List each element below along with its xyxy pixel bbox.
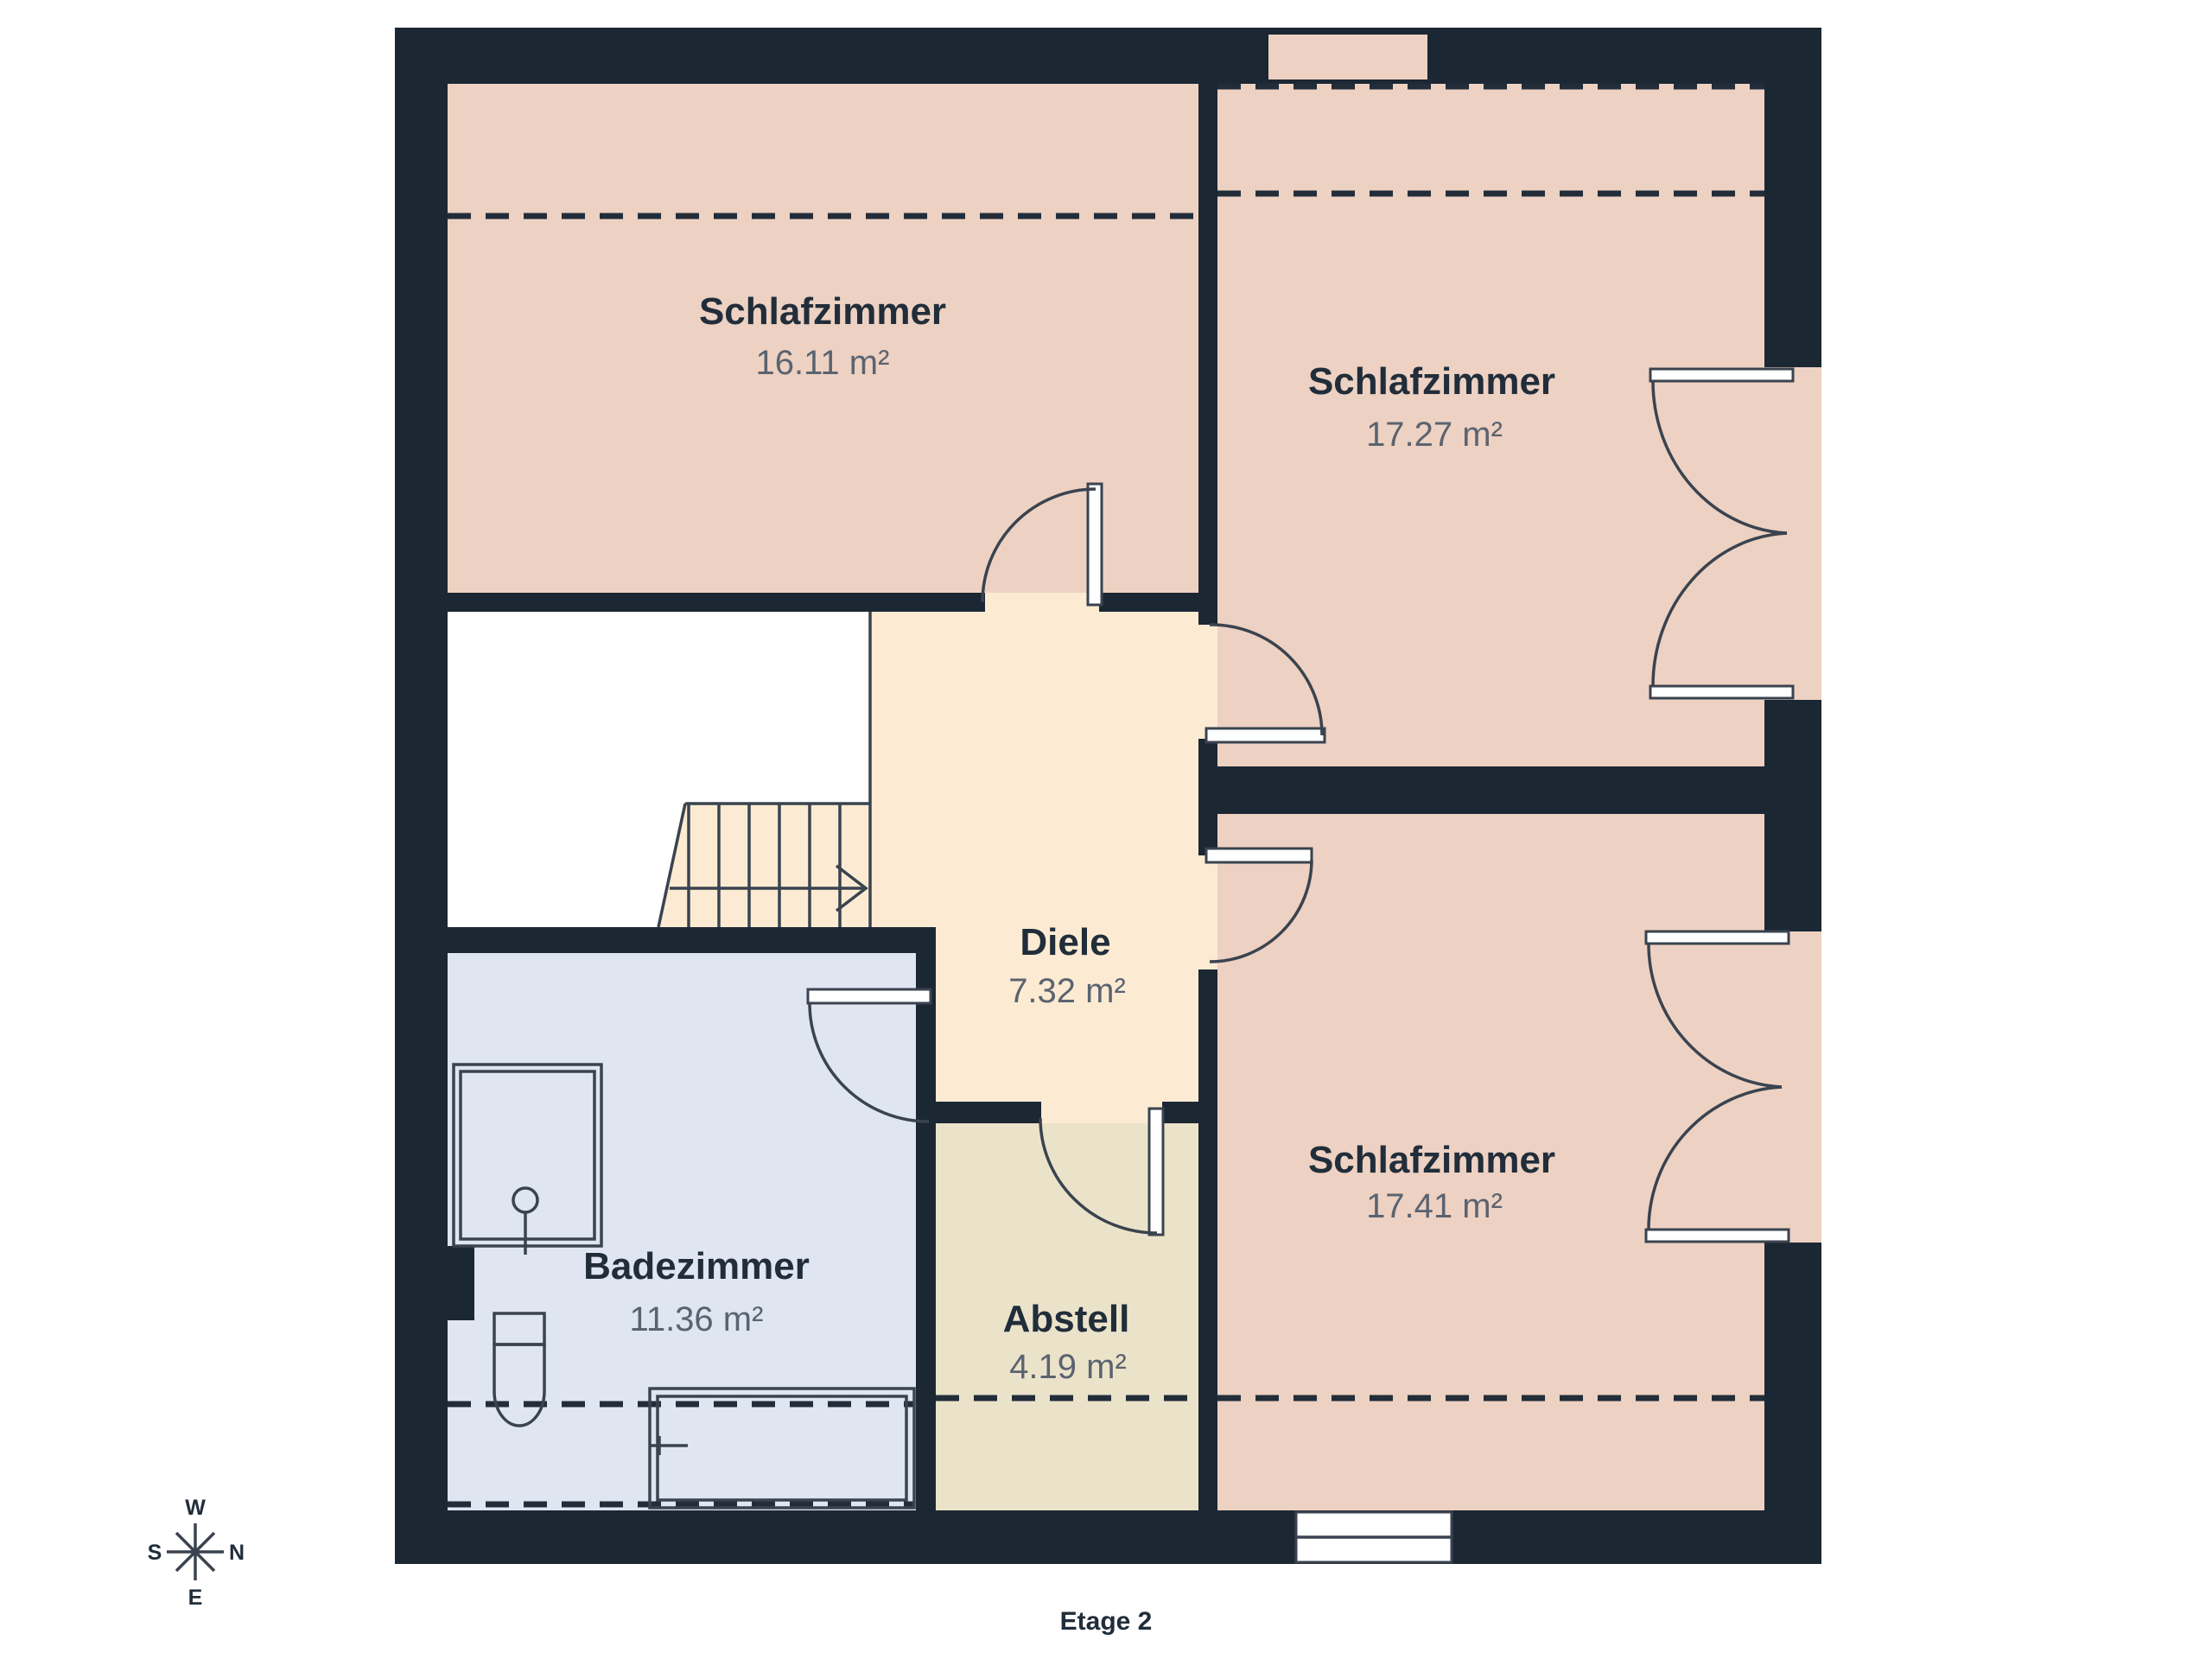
room-label: Schlafzimmer xyxy=(1308,1139,1555,1181)
door-leaf-lower xyxy=(1650,686,1793,698)
room-area: 7.32 m² xyxy=(1008,972,1126,1010)
floor-title: Etage 2 xyxy=(1060,1607,1153,1636)
room-area: 17.27 m² xyxy=(1366,416,1503,454)
floor-plan: Schlafzimmer 16.11 m² Schlafzimmer 17.27… xyxy=(0,0,2212,1659)
room-label: Diele xyxy=(1020,921,1110,963)
compass-left-label: S xyxy=(148,1541,162,1565)
compass-right-label: N xyxy=(229,1541,245,1565)
room-area: 16.11 m² xyxy=(756,344,890,382)
window-bottom xyxy=(1296,1512,1452,1562)
room-label: Schlafzimmer xyxy=(1308,360,1555,403)
compass-center-dot xyxy=(191,1548,200,1556)
room-floor-bedroom-top-left xyxy=(448,84,1198,593)
room-label: Badezimmer xyxy=(583,1245,810,1287)
wall-niche-top xyxy=(1268,35,1427,79)
wall-stub-bathroom xyxy=(448,1246,474,1320)
room-floor-hallway xyxy=(936,612,1198,1102)
door-opening-storage xyxy=(1041,1102,1162,1123)
compass-bottom-label: E xyxy=(188,1586,203,1610)
compass-top-label: W xyxy=(185,1496,206,1520)
door-leaf xyxy=(1206,728,1325,742)
door-leaf xyxy=(1206,849,1312,862)
room-label: Abstell xyxy=(1003,1298,1130,1340)
door-opening-bedroom-top-right xyxy=(1198,625,1217,739)
door-leaf xyxy=(1088,484,1102,605)
stair-treads-area xyxy=(658,804,936,927)
door-leaf-upper xyxy=(1646,931,1789,944)
door-leaf xyxy=(808,989,931,1003)
door-leaf xyxy=(1149,1109,1163,1235)
door-leaf-upper xyxy=(1650,369,1793,381)
door-leaf-lower xyxy=(1646,1230,1789,1242)
room-area: 17.41 m² xyxy=(1366,1187,1503,1225)
door-opening-bedroom-bottom-right xyxy=(1198,855,1217,969)
room-area: 4.19 m² xyxy=(1009,1348,1127,1386)
room-area: 11.36 m² xyxy=(630,1300,764,1338)
compass-rose-icon: W N E S xyxy=(148,1496,245,1610)
door-opening-bedroom-top-left xyxy=(985,593,1099,612)
room-label: Schlafzimmer xyxy=(699,290,946,333)
